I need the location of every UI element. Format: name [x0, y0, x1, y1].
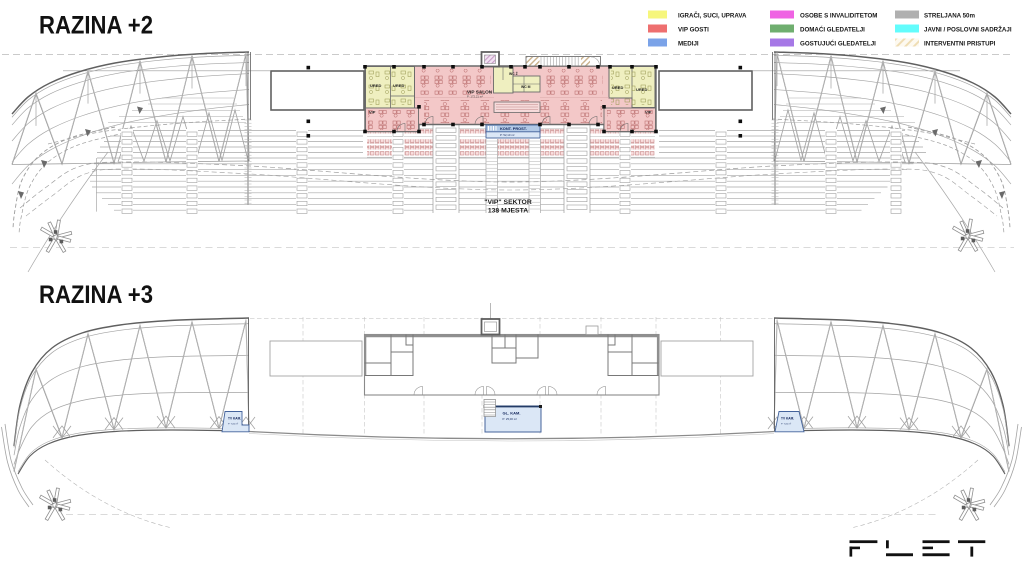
svg-text:WC Ž: WC Ž: [509, 71, 518, 76]
svg-text:138 MJESTA: 138 MJESTA: [488, 208, 528, 215]
svg-text:VIP: VIP: [369, 110, 376, 115]
svg-text:JAVNI / POSLOVNI SADRŽAJI: JAVNI / POSLOVNI SADRŽAJI: [924, 25, 1012, 33]
svg-text:URED: URED: [636, 87, 647, 92]
svg-text:GL. KAM.: GL. KAM.: [503, 411, 521, 416]
svg-text:RAZINA +3: RAZINA +3: [39, 281, 153, 309]
svg-text:INTERVENTNI PRISTUPI: INTERVENTNI PRISTUPI: [924, 40, 996, 47]
svg-text:P: 25,00 m²: P: 25,00 m²: [503, 417, 518, 421]
svg-text:KONT. PROST.: KONT. PROST.: [500, 126, 527, 131]
svg-text:P: 52,10 m²: P: 52,10 m²: [500, 133, 515, 137]
svg-text:VIP GOSTI: VIP GOSTI: [678, 26, 709, 33]
svg-text:VIP: VIP: [645, 110, 652, 115]
svg-text:TV KAM.: TV KAM.: [228, 417, 241, 421]
svg-text:P: 172,21 m²: P: 172,21 m²: [467, 95, 483, 99]
svg-text:"VIP" SEKTOR: "VIP" SEKTOR: [484, 199, 532, 206]
svg-text:OSOBE S INVALIDITETOM: OSOBE S INVALIDITETOM: [800, 12, 877, 19]
svg-text:MEDIJI: MEDIJI: [678, 40, 699, 47]
svg-text:IGRAČI, SUCI, UPRAVA: IGRAČI, SUCI, UPRAVA: [678, 12, 747, 19]
svg-text:URED: URED: [612, 85, 623, 90]
svg-text:WC M: WC M: [521, 85, 531, 89]
svg-text:DOMAĆI GLEDATELJI: DOMAĆI GLEDATELJI: [800, 25, 865, 33]
svg-text:URED: URED: [370, 83, 381, 88]
svg-text:P: 7,00 m²: P: 7,00 m²: [781, 423, 791, 426]
svg-text:P: 7,00 m²: P: 7,00 m²: [228, 423, 238, 426]
svg-text:STRELJANA 50m: STRELJANA 50m: [924, 12, 975, 19]
svg-text:URED: URED: [393, 83, 404, 88]
svg-text:GOSTUJUĆI GLEDATELJI: GOSTUJUĆI GLEDATELJI: [800, 39, 876, 47]
svg-text:RAZINA +2: RAZINA +2: [39, 12, 153, 40]
svg-text:TV KAM.: TV KAM.: [781, 417, 794, 421]
